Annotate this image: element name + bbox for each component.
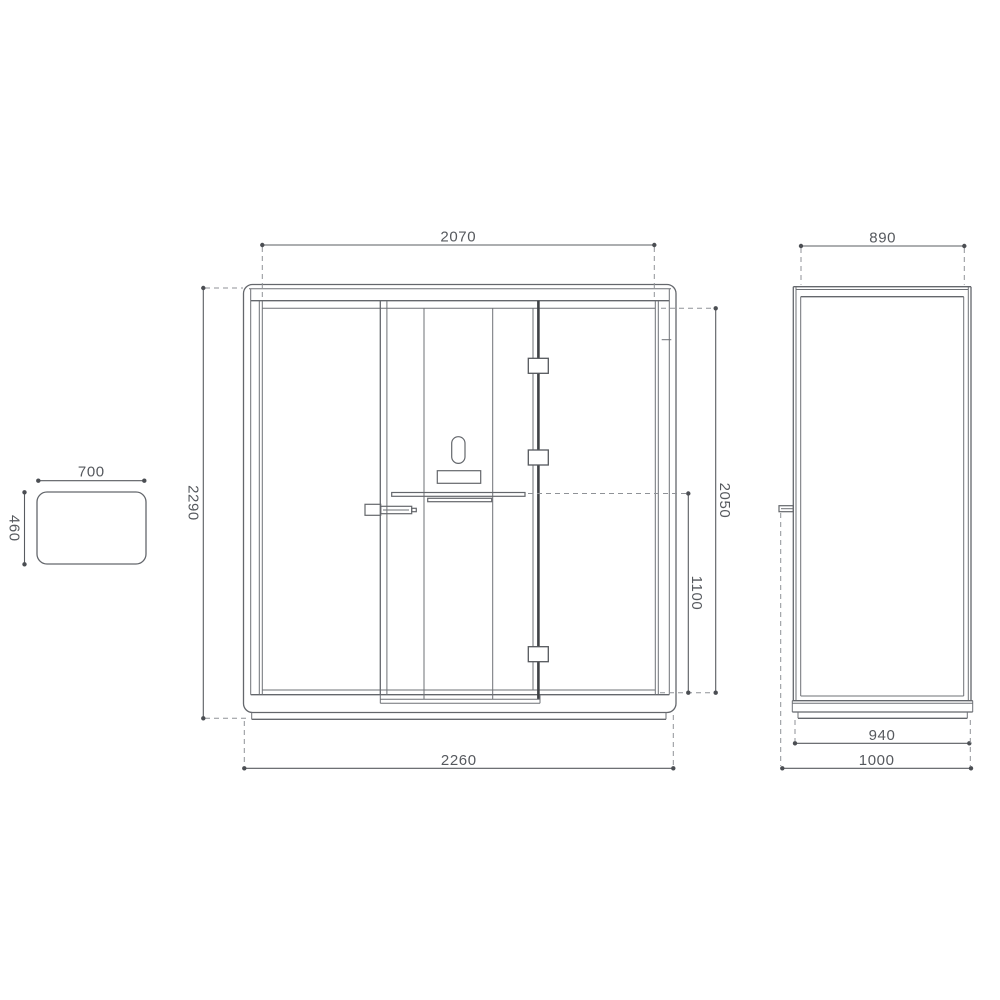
- dim-label-front-overall-height: 2290: [185, 485, 202, 521]
- door-mullion: [380, 301, 387, 695]
- door-sill: [380, 695, 540, 704]
- door-handle: [365, 504, 416, 515]
- front-plinth: [252, 713, 666, 720]
- dim-dot: [799, 244, 803, 248]
- top-rail: [251, 301, 670, 309]
- tabletop-outline: [37, 492, 146, 564]
- door-vent-plate: [437, 471, 480, 484]
- side-door-handle: [779, 506, 793, 512]
- dim-dot: [242, 766, 246, 770]
- dim-label-front-right-inner-height: 2050: [716, 483, 733, 519]
- door-center-panel: [424, 308, 493, 699]
- dimension-front-overall-width: 2260: [242, 715, 675, 771]
- bottom-rail: [251, 690, 670, 695]
- dimension-front-worktop-height: 1100: [528, 491, 705, 695]
- shelf-support: [428, 498, 492, 501]
- dim-label-front-opening-width: 2070: [440, 229, 476, 246]
- side-plinth: [798, 712, 967, 718]
- dim-dot: [201, 286, 205, 290]
- dim-dot: [201, 716, 205, 720]
- dim-dot: [780, 766, 784, 770]
- left-glass-panel-edge: [259, 301, 262, 695]
- dim-dot: [714, 691, 718, 695]
- dimension-table-depth: 460: [6, 490, 27, 566]
- side-right-wall: [964, 287, 971, 701]
- dim-dot: [652, 243, 656, 247]
- dimension-front-overall-height: 2290: [185, 286, 250, 721]
- dimension-side-base-depth: 940: [793, 720, 972, 746]
- dim-dot: [142, 479, 146, 483]
- dim-label-side-overall-depth: 1000: [859, 752, 895, 769]
- tabletop-plan-view: 700 460: [6, 464, 147, 567]
- front-elevation-view: [244, 285, 677, 720]
- dim-label-table-depth: 460: [6, 515, 23, 542]
- dim-dot: [671, 766, 675, 770]
- dim-dot: [686, 691, 690, 695]
- dimension-drawing-canvas: 700 460: [0, 0, 1000, 1000]
- dim-dot: [22, 490, 26, 494]
- dim-label-table-width: 700: [78, 464, 105, 481]
- dim-dot: [22, 562, 26, 566]
- worktop-shelf: [392, 493, 525, 502]
- dimension-table-width: 700: [36, 464, 146, 483]
- right-glass-panel-edge: [655, 301, 658, 695]
- hinge-middle: [528, 450, 548, 465]
- dim-dot: [686, 491, 690, 495]
- dim-dot: [793, 741, 797, 745]
- dim-dot: [260, 243, 264, 247]
- dim-label-side-top-depth: 890: [869, 230, 896, 247]
- dim-label-front-worktop-height: 1100: [688, 576, 705, 611]
- side-base-band: [792, 701, 972, 712]
- hinge-top: [528, 358, 548, 373]
- dimension-side-top-depth: 890: [799, 230, 967, 285]
- side-left-wall: [793, 287, 800, 701]
- dim-dot: [969, 766, 973, 770]
- dim-dot: [36, 479, 40, 483]
- hinge-bottom: [528, 647, 548, 662]
- door-pull-cutout: [452, 437, 465, 464]
- dim-dot: [714, 306, 718, 310]
- dimension-front-right-inner-height: 2050: [660, 306, 733, 695]
- dim-dot: [967, 741, 971, 745]
- dim-label-side-base-depth: 940: [869, 727, 896, 744]
- dim-label-front-overall-width: 2260: [441, 752, 477, 769]
- side-elevation-view: [779, 287, 973, 719]
- dim-dot: [962, 244, 966, 248]
